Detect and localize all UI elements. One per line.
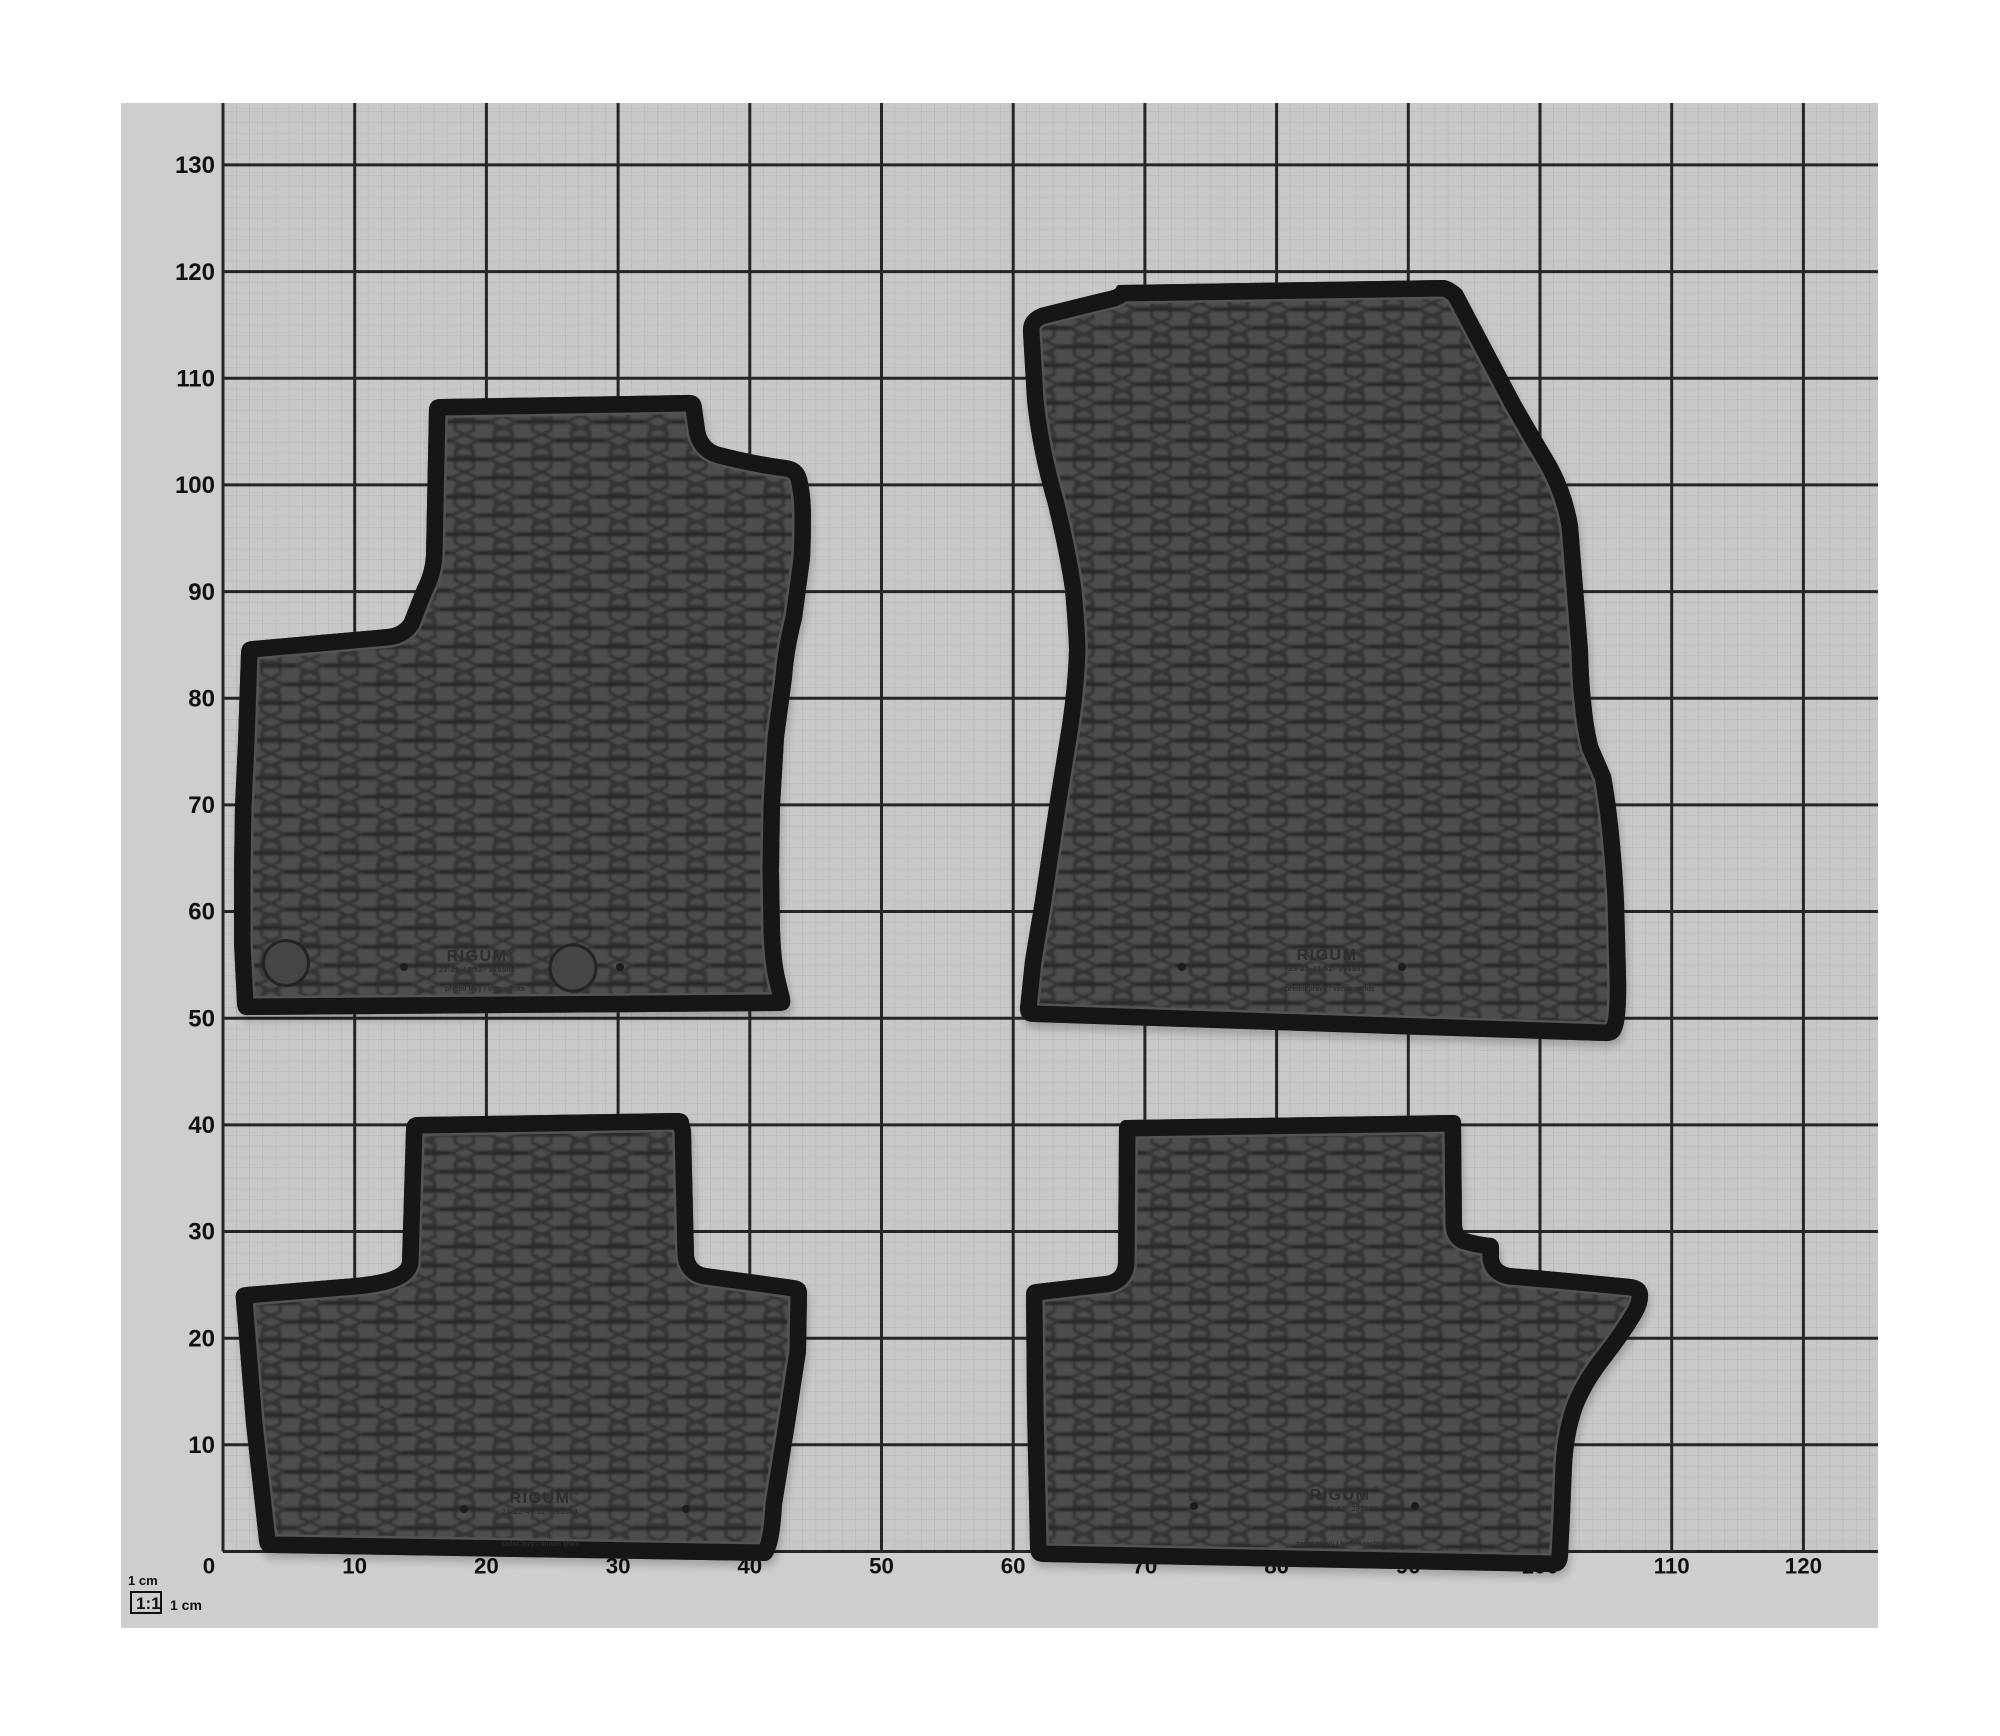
svg-text:přední levý / vorne links: přední levý / vorne links <box>445 986 525 993</box>
svg-text:20: 20 <box>188 1325 215 1352</box>
svg-text:zadní levý / hinten links: zadní levý / hinten links <box>501 1541 579 1548</box>
svg-text:RIGUM: RIGUM <box>1310 1487 1371 1504</box>
svg-text:30: 30 <box>188 1219 215 1246</box>
svg-text:60: 60 <box>1001 1554 1026 1579</box>
svg-text:®: ® <box>510 946 516 955</box>
svg-text:23-21-45 52- 395501: 23-21-45 52- 395501 <box>1289 964 1366 973</box>
svg-text:®: ® <box>1360 945 1366 954</box>
svg-text:0: 0 <box>203 1554 215 1579</box>
svg-text:60: 60 <box>188 899 215 926</box>
svg-text:110: 110 <box>176 365 215 392</box>
svg-text:23-21-45 52- 395502: 23-21-45 52- 395502 <box>1302 1504 1379 1513</box>
svg-text:23-21-45 52- 395503: 23-21-45 52- 395503 <box>502 1507 579 1516</box>
svg-text:®: ® <box>573 1488 579 1497</box>
svg-text:®: ® <box>1373 1485 1379 1494</box>
svg-text:1:1: 1:1 <box>136 1594 161 1613</box>
svg-text:23-21-45 52- 395504: 23-21-45 52- 395504 <box>439 965 516 974</box>
svg-text:1 cm: 1 cm <box>128 1573 158 1588</box>
svg-text:RIGUM: RIGUM <box>1297 947 1358 964</box>
svg-text:1 cm: 1 cm <box>170 1597 202 1613</box>
svg-text:130: 130 <box>175 152 215 179</box>
svg-text:40: 40 <box>188 1112 215 1139</box>
svg-text:10: 10 <box>188 1432 215 1459</box>
svg-text:50: 50 <box>869 1554 894 1579</box>
svg-text:110: 110 <box>1654 1554 1690 1579</box>
svg-text:90: 90 <box>188 579 215 606</box>
svg-text:100: 100 <box>175 472 215 499</box>
svg-text:120: 120 <box>1785 1554 1822 1579</box>
svg-text:přední pravý / vorne rechts: přední pravý / vorne rechts <box>1285 986 1375 993</box>
svg-text:50: 50 <box>188 1005 215 1032</box>
svg-text:80: 80 <box>188 685 215 712</box>
svg-text:120: 120 <box>175 259 215 286</box>
svg-text:70: 70 <box>188 792 215 819</box>
svg-text:RIGUM: RIGUM <box>447 948 508 965</box>
svg-text:RIGUM: RIGUM <box>510 1490 571 1507</box>
svg-text:zadní pravý / hinten rechts: zadní pravý / hinten rechts <box>1296 1541 1384 1548</box>
